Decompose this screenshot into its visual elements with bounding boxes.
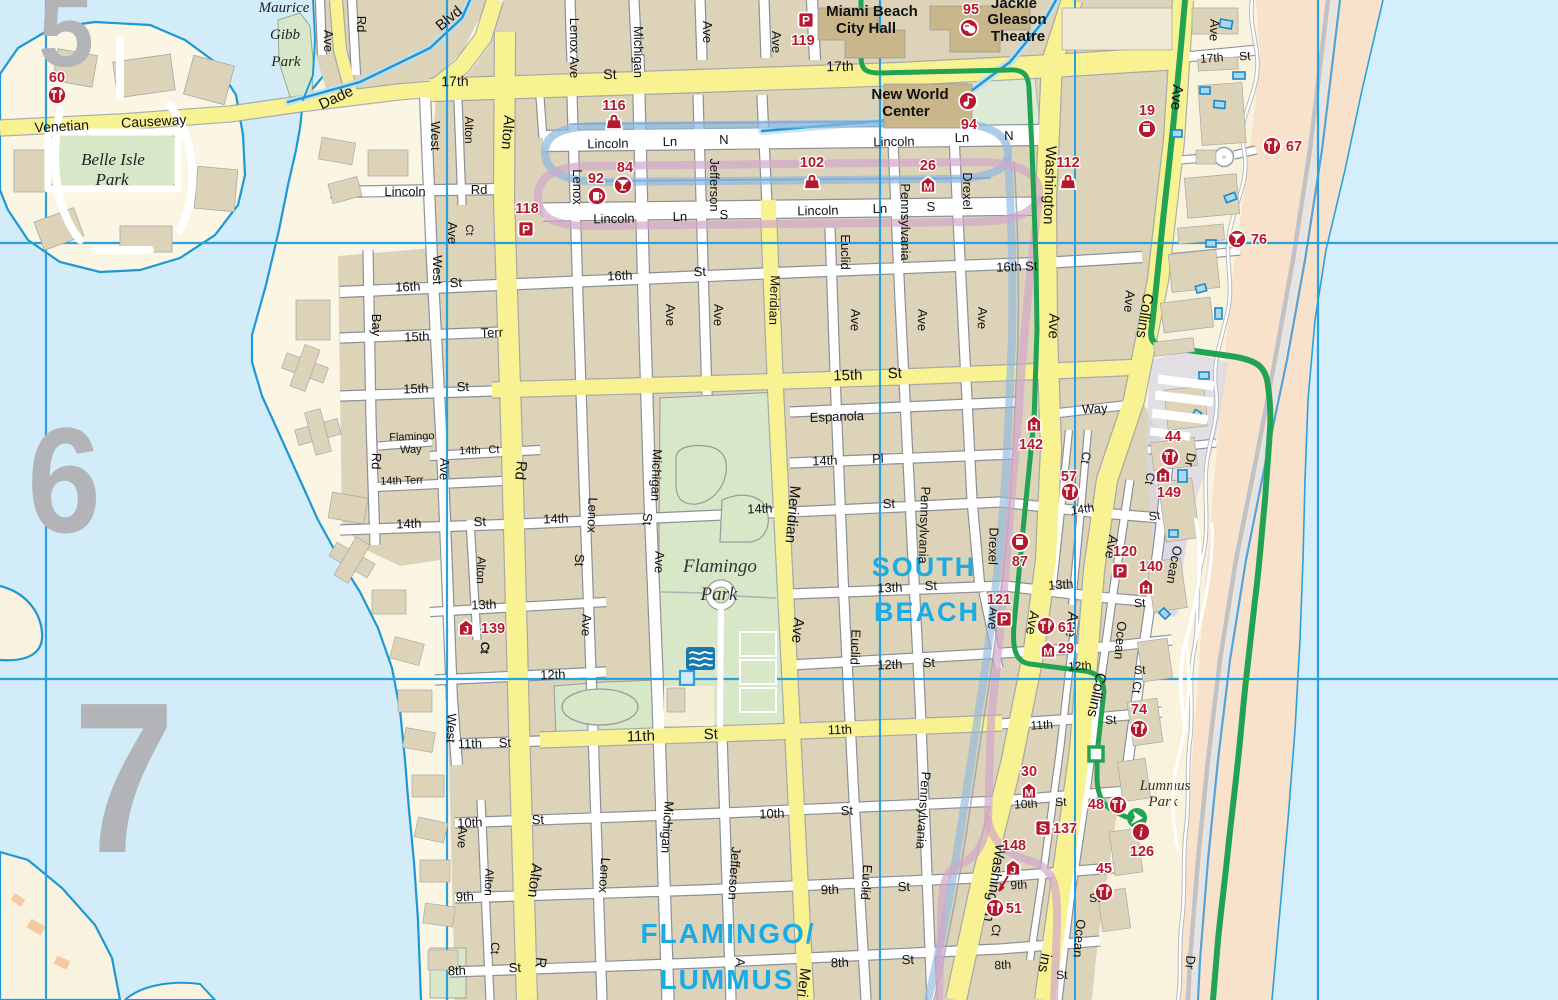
svg-text:Lincoln: Lincoln	[384, 184, 425, 199]
svg-text:Michigan: Michigan	[631, 26, 646, 78]
svg-text:Lenox Ave: Lenox Ave	[567, 18, 582, 78]
svg-text:5: 5	[38, 0, 94, 88]
svg-text:Gibb: Gibb	[270, 27, 301, 43]
svg-text:Ave: Ave	[769, 31, 784, 53]
svg-text:Causeway: Causeway	[121, 111, 187, 130]
svg-text:J: J	[463, 625, 469, 637]
svg-text:Alton: Alton	[498, 115, 518, 151]
svg-text:Belle Isle: Belle Isle	[81, 150, 145, 169]
svg-text:149: 149	[1157, 485, 1181, 501]
svg-text:76: 76	[1251, 232, 1267, 248]
svg-text:Ave: Ave	[975, 307, 990, 329]
svg-text:29: 29	[1058, 641, 1074, 657]
svg-text:Dr: Dr	[1182, 955, 1198, 971]
svg-text:Ave: Ave	[915, 309, 930, 331]
svg-text:Pennsylvania: Pennsylvania	[898, 183, 913, 261]
svg-text:94: 94	[961, 117, 977, 133]
svg-text:BEACH: BEACH	[874, 597, 980, 627]
svg-text:Alton: Alton	[482, 868, 497, 896]
svg-text:N: N	[1004, 128, 1014, 143]
svg-text:Rd: Rd	[511, 460, 530, 481]
svg-text:Ct: Ct	[463, 225, 475, 236]
svg-text:P: P	[802, 14, 810, 28]
svg-text:St: St	[693, 264, 706, 279]
svg-text:Alton: Alton	[474, 556, 489, 584]
svg-text:14th: 14th	[459, 445, 481, 458]
svg-text:St: St	[1056, 968, 1069, 983]
svg-text:Ave: Ave	[1045, 313, 1063, 339]
svg-text:45: 45	[1096, 861, 1112, 877]
svg-text:Ave: Ave	[437, 458, 453, 481]
svg-text:New World: New World	[871, 86, 948, 103]
svg-text:Venetian: Venetian	[34, 117, 89, 136]
svg-text:P: P	[522, 223, 530, 237]
svg-text:Ave: Ave	[711, 304, 726, 326]
svg-text:St: St	[473, 514, 486, 529]
svg-text:142: 142	[1019, 437, 1043, 453]
svg-text:St: St	[449, 275, 462, 290]
svg-text:140: 140	[1139, 559, 1163, 575]
svg-text:S: S	[926, 199, 935, 214]
svg-text:H: H	[1142, 584, 1150, 596]
svg-text:Ave: Ave	[445, 222, 460, 244]
svg-text:S: S	[1039, 822, 1047, 836]
svg-text:Maurice: Maurice	[258, 0, 310, 16]
svg-text:St: St	[924, 578, 937, 593]
svg-text:Lincoln: Lincoln	[873, 134, 914, 150]
svg-text:City Hall: City Hall	[836, 20, 896, 37]
svg-text:Jefferson: Jefferson	[707, 158, 722, 211]
svg-text:St: St	[897, 879, 910, 894]
svg-text:St: St	[887, 365, 903, 383]
svg-text:St: St	[1134, 663, 1147, 678]
svg-text:9th: 9th	[821, 882, 840, 898]
svg-text:H: H	[1030, 421, 1038, 433]
svg-text:19: 19	[1139, 103, 1155, 119]
svg-text:51: 51	[1006, 901, 1022, 917]
svg-text:St: St	[508, 960, 521, 975]
svg-text:13th: 13th	[877, 580, 903, 596]
svg-text:Ave: Ave	[321, 30, 336, 52]
svg-text:Ln: Ln	[873, 201, 888, 216]
svg-text:6: 6	[27, 396, 100, 564]
svg-text:Theatre: Theatre	[991, 28, 1045, 45]
svg-text:St: St	[572, 554, 587, 567]
svg-text:48: 48	[1088, 797, 1104, 813]
svg-text:Park: Park	[94, 170, 129, 189]
svg-text:92: 92	[588, 171, 604, 187]
svg-text:Park: Park	[700, 584, 739, 605]
svg-text:Drexel: Drexel	[985, 527, 1001, 565]
svg-text:112: 112	[1056, 155, 1079, 171]
svg-text:M: M	[1043, 647, 1052, 659]
svg-text:Lenox: Lenox	[596, 857, 613, 894]
svg-text:95: 95	[963, 2, 979, 18]
svg-text:St: St	[1134, 596, 1147, 611]
svg-text:Ln: Ln	[663, 134, 678, 149]
svg-text:16th: 16th	[607, 268, 633, 284]
svg-text:120: 120	[1113, 544, 1137, 560]
svg-text:P: P	[1000, 613, 1008, 627]
svg-text:12th: 12th	[540, 667, 566, 683]
svg-text:14th: 14th	[747, 501, 773, 517]
svg-text:Park: Park	[270, 54, 301, 70]
svg-text:14th: 14th	[812, 453, 838, 469]
svg-text:Flamingo: Flamingo	[682, 556, 757, 577]
svg-text:Drexel: Drexel	[960, 172, 975, 210]
svg-text:Lincoln: Lincoln	[797, 203, 838, 219]
svg-text:Michigan: Michigan	[648, 449, 665, 502]
svg-text:Gleason: Gleason	[987, 11, 1046, 28]
svg-text:St: St	[640, 513, 655, 526]
svg-text:10th: 10th	[759, 806, 785, 822]
svg-text:118: 118	[515, 201, 538, 217]
svg-text:87: 87	[1012, 554, 1028, 570]
svg-text:Lenox: Lenox	[584, 497, 600, 533]
svg-text:J: J	[1010, 865, 1016, 877]
svg-text:Meri: Meri	[793, 967, 813, 998]
svg-text:14th: 14th	[396, 516, 422, 532]
svg-text:Ave: Ave	[788, 617, 807, 644]
svg-text:102: 102	[800, 155, 824, 171]
svg-text:West: West	[430, 255, 445, 285]
svg-text:Ct: Ct	[988, 924, 1003, 938]
svg-text:Terr: Terr	[480, 325, 504, 341]
svg-text:119: 119	[791, 33, 814, 49]
svg-text:Euclid: Euclid	[858, 864, 875, 900]
svg-text:8th: 8th	[994, 958, 1011, 973]
svg-text:Flamingo: Flamingo	[389, 430, 435, 444]
svg-text:Ave: Ave	[848, 309, 863, 331]
svg-text:Rd: Rd	[369, 453, 385, 470]
svg-text:13th: 13th	[1048, 576, 1074, 593]
svg-text:11th: 11th	[1030, 717, 1053, 732]
svg-text:H: H	[1159, 472, 1167, 484]
svg-text:116: 116	[602, 98, 625, 114]
svg-text:i: i	[1139, 825, 1143, 840]
svg-text:Ave: Ave	[663, 304, 678, 326]
svg-text:N: N	[719, 132, 729, 147]
svg-text:St: St	[703, 726, 719, 744]
svg-text:12th: 12th	[1068, 658, 1092, 673]
svg-text:Meridian: Meridian	[766, 275, 783, 325]
svg-text:St: St	[840, 803, 853, 818]
svg-text:St: St	[1105, 713, 1118, 728]
svg-text:148: 148	[1002, 838, 1026, 854]
svg-text:Pennsylvania: Pennsylvania	[916, 486, 934, 565]
svg-text:Euclid: Euclid	[847, 629, 863, 665]
svg-text:M: M	[923, 182, 932, 194]
svg-text:121: 121	[987, 592, 1011, 608]
svg-text:St: St	[922, 655, 935, 670]
svg-text:Way: Way	[1082, 400, 1109, 416]
svg-text:11th: 11th	[627, 728, 656, 746]
svg-text:Ct: Ct	[478, 641, 490, 652]
svg-text:Ave: Ave	[1207, 19, 1223, 42]
svg-text:West: West	[428, 121, 443, 151]
svg-text:Lummus: Lummus	[1139, 778, 1191, 794]
svg-text:St: St	[531, 812, 544, 827]
svg-text:Ave: Ave	[1121, 290, 1138, 313]
svg-text:St: St	[1055, 795, 1068, 810]
svg-text:Ave: Ave	[652, 551, 668, 574]
svg-text:St: St	[603, 66, 617, 82]
svg-text:Ave: Ave	[1167, 84, 1186, 111]
svg-text:15th: 15th	[833, 366, 863, 384]
svg-text:30: 30	[1021, 764, 1037, 780]
svg-text:Lincoln: Lincoln	[587, 136, 628, 152]
svg-text:44: 44	[1165, 429, 1181, 445]
svg-text:Ln: Ln	[673, 209, 688, 224]
svg-text:16th: 16th	[395, 279, 421, 295]
svg-text:Miami Beach: Miami Beach	[826, 3, 918, 20]
svg-text:P: P	[1116, 565, 1124, 579]
svg-text:Way: Way	[400, 444, 422, 457]
svg-text:84: 84	[617, 160, 633, 176]
svg-text:9th: 9th	[1010, 878, 1027, 893]
svg-text:Euclid: Euclid	[838, 234, 853, 269]
svg-text:Bay: Bay	[369, 314, 384, 337]
svg-text:9th: 9th	[456, 889, 475, 905]
svg-text:14th: 14th	[543, 511, 569, 527]
svg-text:Rd: Rd	[471, 182, 488, 197]
svg-text:A: A	[733, 957, 749, 967]
svg-text:15th: 15th	[403, 381, 429, 397]
svg-text:Ave: Ave	[579, 614, 595, 637]
svg-text:LUMMUS: LUMMUS	[660, 964, 795, 995]
svg-text:Rd: Rd	[354, 16, 369, 33]
svg-text:Ave: Ave	[700, 21, 715, 43]
svg-text:74: 74	[1131, 702, 1147, 718]
svg-text:St: St	[882, 496, 895, 511]
svg-text:R: R	[531, 956, 549, 969]
svg-text:17th: 17th	[441, 73, 469, 89]
svg-text:126: 126	[1130, 844, 1154, 860]
svg-text:17th: 17th	[826, 58, 854, 74]
svg-text:West: West	[443, 713, 459, 743]
svg-text:Pl: Pl	[872, 451, 884, 466]
svg-text:16th St: 16th St	[996, 258, 1038, 274]
svg-text:17th: 17th	[1200, 50, 1224, 66]
svg-text:St: St	[901, 952, 914, 967]
svg-text:M: M	[1024, 788, 1033, 800]
svg-text:15th: 15th	[404, 329, 430, 345]
svg-text:Ave: Ave	[455, 826, 471, 849]
svg-text:Lenox: Lenox	[570, 169, 585, 205]
svg-text:67: 67	[1286, 139, 1302, 155]
svg-text:137: 137	[1053, 821, 1077, 837]
svg-text:14th Terr: 14th Terr	[380, 474, 424, 488]
svg-text:Alton: Alton	[462, 116, 476, 143]
svg-text:St: St	[498, 735, 511, 750]
svg-text:St: St	[1239, 49, 1252, 64]
svg-text:8th: 8th	[448, 963, 467, 979]
svg-text:Lincoln: Lincoln	[593, 211, 634, 227]
svg-text:12th: 12th	[877, 657, 903, 673]
svg-text:Espanola: Espanola	[809, 408, 864, 425]
svg-text:St: St	[456, 379, 469, 394]
svg-text:8th: 8th	[831, 955, 850, 971]
svg-text:Ct: Ct	[488, 444, 499, 456]
svg-text:7: 7	[73, 658, 175, 898]
svg-text:26: 26	[920, 158, 936, 174]
svg-text:13th: 13th	[471, 597, 497, 613]
svg-text:FLAMINGO/: FLAMINGO/	[640, 918, 815, 949]
svg-text:11th: 11th	[827, 722, 852, 738]
svg-text:11th: 11th	[457, 736, 482, 752]
svg-text:Ct: Ct	[488, 942, 502, 955]
svg-text:61: 61	[1058, 620, 1074, 636]
svg-text:Ct: Ct	[1129, 681, 1144, 695]
svg-text:Center: Center	[882, 103, 930, 120]
svg-text:60: 60	[49, 70, 65, 86]
svg-text:139: 139	[481, 621, 505, 637]
